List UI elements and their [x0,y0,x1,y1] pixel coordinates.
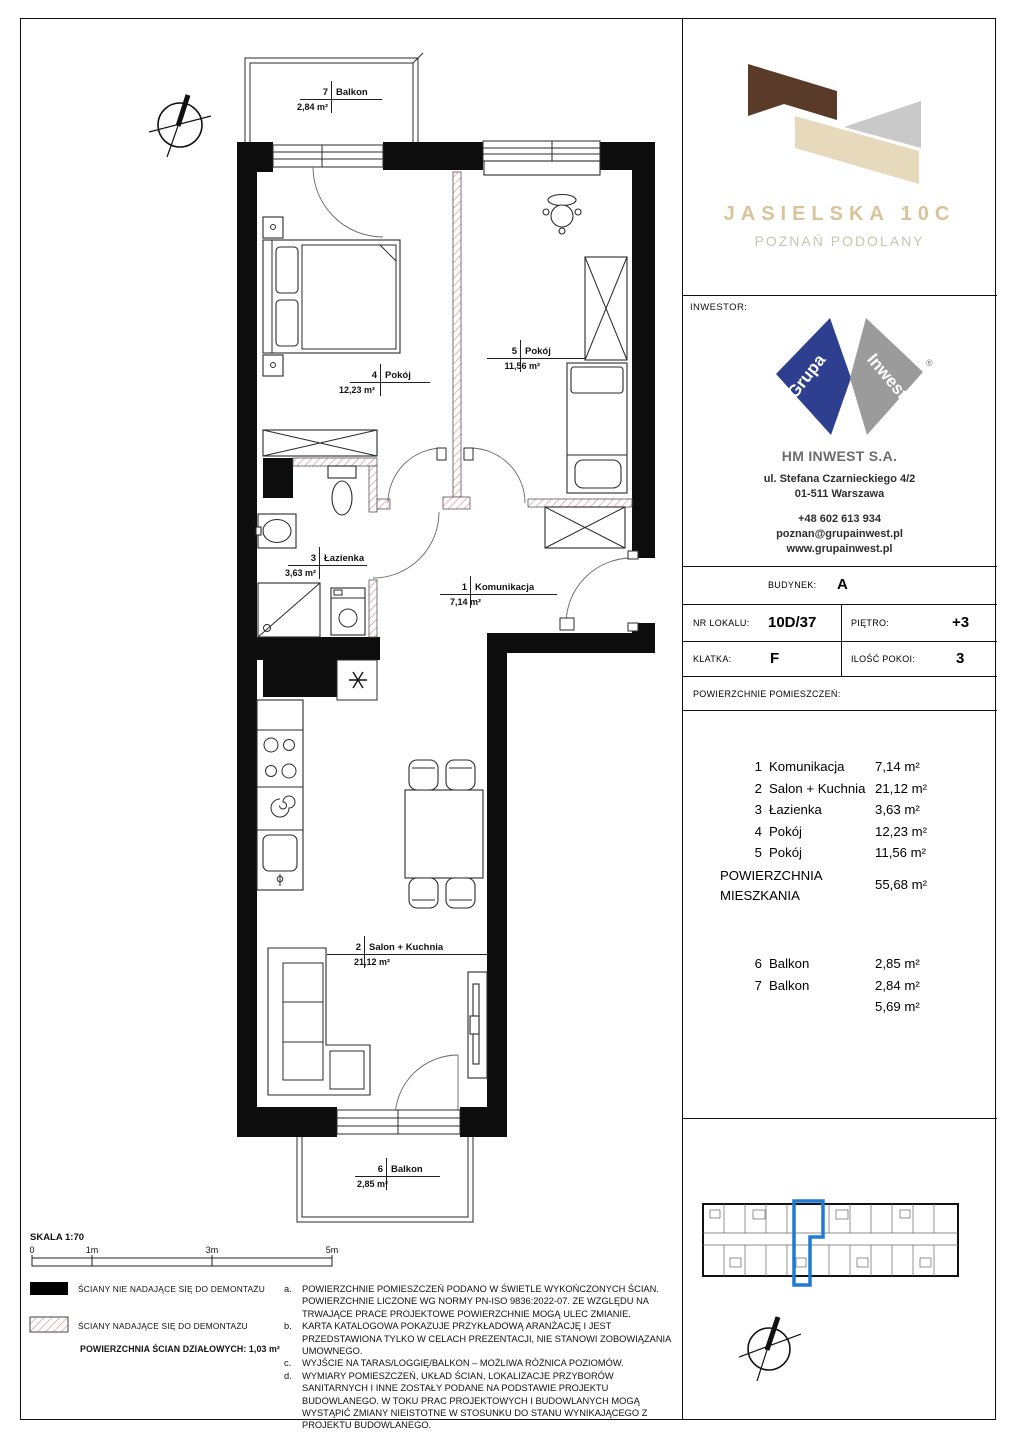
budynek-label: BUDYNEK: [768,580,816,590]
company-name: HM INWEST S.A. [682,448,997,464]
total-area-label: POWIERZCHNIA MIESZKANIA [720,866,870,905]
klatka-label: KLATKA: [693,654,731,664]
company-website: www.grupainwest.pl [682,543,997,555]
pietro-value: +3 [952,614,969,631]
total-area-value: 55,68 m² [875,877,927,892]
area-row-3: 3 Łazienka 3,63 m² [682,802,997,822]
balcony-row-6: 6 Balkon 2,85 m² [682,956,997,976]
nr-lokalu-label: NR LOKALU: [693,618,750,628]
building-overview [682,1118,998,1422]
company-email: poznan@grupainwest.pl [682,528,997,540]
company-phone: +48 602 613 934 [682,513,997,525]
area-row-5: 5 Pokój 11,56 m² [682,845,997,865]
registered-mark: ® [926,358,933,368]
divider-areas-top [682,710,997,711]
areas-header: POWIERZCHNIE POMIESZCZEŃ: [693,689,841,699]
balcony-total-row: 5,69 m² [682,999,997,1019]
company-address-1: ul. Stefana Czarnieckiego 4/2 [682,473,997,485]
area-row-4: 4 Pokój 12,23 m² [682,824,997,844]
divider-logo [682,295,997,296]
project-logo [682,18,998,295]
catalog-card-page: 7 Balkon 2,84 m² 4 Pokój 12,23 m² 5 Pokó… [0,0,1018,1440]
ilosc-pokoi-value: 3 [956,650,964,667]
project-location: POZNAŃ PODOLANY [682,233,997,249]
compass-icon-bottom [739,1317,801,1381]
project-name: JASIELSKA 10C [682,203,997,226]
company-address-2: 01-511 Warszawa [682,488,997,500]
ilosc-pokoi-label: ILOŚĆ POKOI: [851,654,915,664]
klatka-value: F [770,650,779,667]
budynek-value: A [837,576,848,593]
pietro-label: PIĘTRO: [851,618,889,628]
area-row-2: 2 Salon + Kuchnia 21,12 m² [682,781,997,801]
grupa-inwest-logo: Grupa Inwest ® [682,300,998,440]
balcony-row-7: 7 Balkon 2,84 m² [682,978,997,998]
building-overview-plan [703,1204,958,1276]
area-row-1: 1 Komunikacja 7,14 m² [682,759,997,779]
nr-lokalu-value: 10D/37 [768,614,816,631]
